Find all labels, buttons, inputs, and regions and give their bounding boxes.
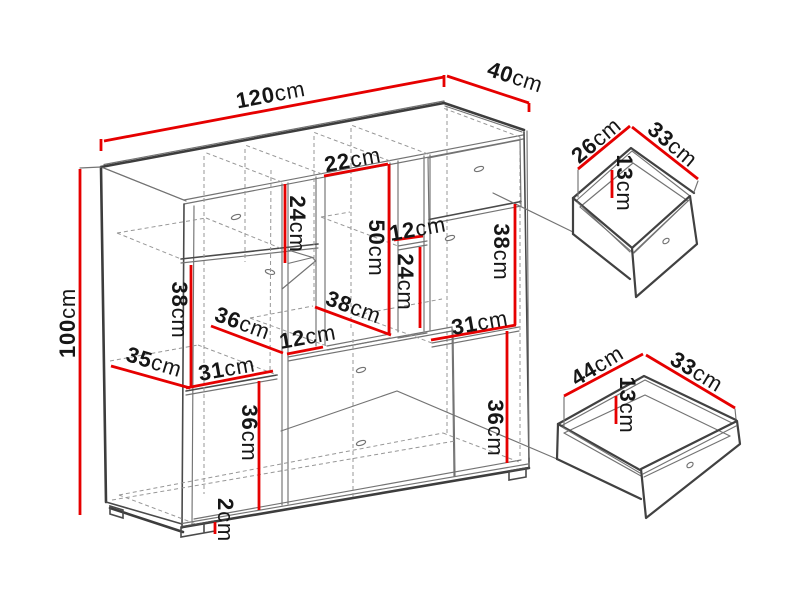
svg-text:24cm: 24cm	[285, 195, 310, 252]
svg-text:50cm: 50cm	[364, 219, 389, 276]
svg-text:24cm: 24cm	[393, 253, 418, 310]
svg-text:13cm: 13cm	[612, 154, 637, 211]
svg-text:100cm: 100cm	[55, 288, 80, 358]
svg-text:38cm: 38cm	[489, 223, 514, 280]
svg-text:38cm: 38cm	[167, 281, 192, 338]
svg-text:36cm: 36cm	[237, 404, 262, 461]
svg-text:36cm: 36cm	[483, 399, 508, 456]
svg-text:2cm: 2cm	[213, 498, 238, 542]
svg-text:13cm: 13cm	[615, 376, 640, 433]
